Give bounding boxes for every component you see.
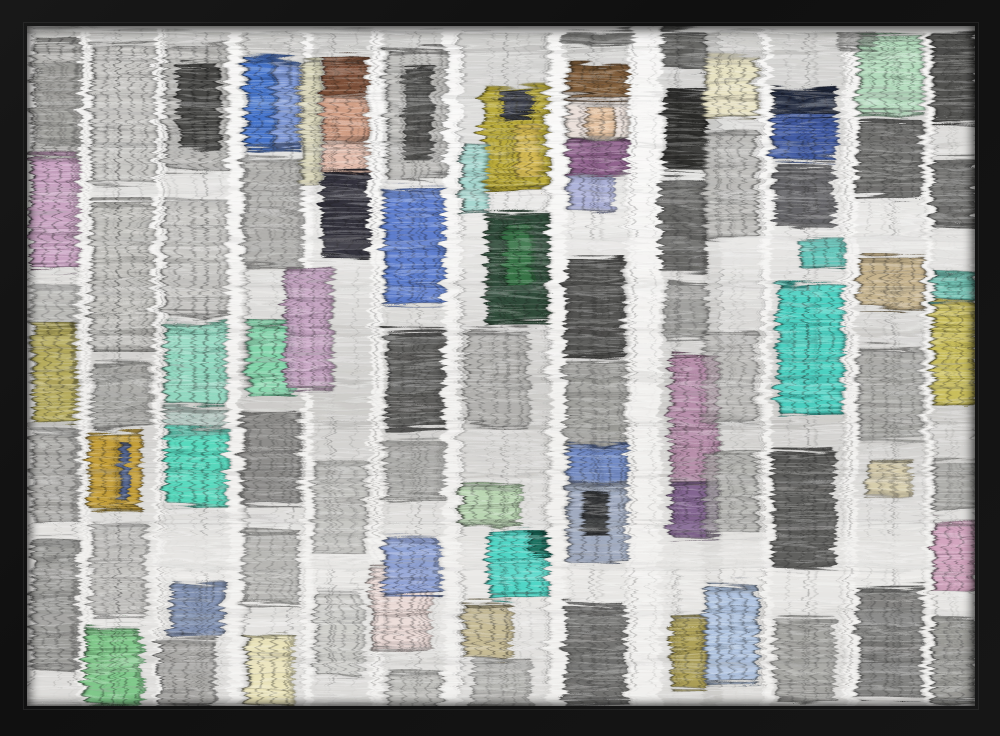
window-reflection	[161, 318, 223, 400]
window-reflection	[29, 426, 75, 521]
window-reflection	[657, 176, 701, 268]
window-reflection	[311, 586, 359, 671]
window-reflection	[380, 183, 440, 300]
window-reflection	[559, 26, 629, 40]
window-reflection	[854, 116, 918, 194]
window-reflection	[29, 536, 75, 666]
window-reflection	[659, 26, 701, 66]
reflection-scene	[27, 26, 975, 706]
picture-frame	[0, 0, 1000, 736]
window-reflection	[87, 196, 149, 346]
window-reflection	[929, 154, 974, 226]
window-reflection	[929, 270, 974, 298]
window-reflection	[463, 326, 525, 422]
window-reflection	[295, 54, 317, 182]
window-reflection	[562, 600, 622, 700]
window-reflection	[562, 252, 620, 352]
window-reflection	[280, 262, 328, 384]
window-reflection	[239, 154, 297, 262]
window-reflection	[457, 478, 517, 521]
window-reflection	[81, 622, 139, 702]
window-reflection	[115, 438, 125, 496]
window-reflection	[239, 526, 293, 601]
window-reflection	[380, 530, 437, 592]
window-reflection	[929, 298, 974, 400]
window-reflection	[929, 518, 974, 588]
window-reflection	[33, 56, 73, 141]
window-reflection	[318, 136, 364, 168]
window-reflection	[239, 406, 295, 501]
window-reflection	[699, 50, 754, 113]
window-reflection	[863, 454, 907, 492]
window-reflection	[167, 578, 220, 631]
window-reflection	[700, 581, 754, 678]
window-reflection	[564, 60, 624, 95]
framed-art-print	[0, 0, 1000, 736]
window-reflection	[499, 222, 529, 282]
window-reflection	[155, 634, 211, 704]
window-reflection	[699, 446, 754, 531]
window-reflection	[769, 83, 833, 110]
window-reflection	[309, 456, 363, 551]
window-reflection	[564, 135, 624, 172]
window-reflection	[579, 486, 603, 530]
window-reflection	[794, 233, 839, 263]
window-reflection	[854, 344, 918, 436]
window-reflection	[667, 611, 700, 685]
window-reflection	[382, 434, 440, 496]
window-reflection	[87, 40, 151, 180]
window-reflection	[174, 60, 216, 144]
window-reflection	[318, 54, 364, 92]
window-reflection	[497, 86, 529, 114]
window-reflection	[929, 456, 974, 506]
window-reflection	[460, 598, 507, 655]
window-reflection	[161, 404, 223, 426]
window-reflection	[564, 170, 610, 206]
window-reflection	[27, 151, 75, 266]
window-reflection	[771, 614, 831, 696]
window-reflection	[384, 666, 438, 705]
window-reflection	[270, 57, 294, 143]
window-reflection	[774, 279, 839, 409]
window-reflection	[469, 656, 527, 705]
window-reflection	[527, 526, 545, 552]
window-reflection	[457, 139, 483, 209]
artwork-photo	[27, 26, 975, 706]
window-reflection	[511, 122, 537, 174]
window-reflection	[564, 439, 624, 478]
ripple-layer	[27, 26, 975, 706]
window-reflection	[29, 281, 75, 321]
window-reflection	[661, 278, 703, 336]
window-reflection	[161, 424, 223, 502]
window-reflection	[854, 252, 920, 305]
window-reflection	[929, 26, 974, 121]
window-reflection	[161, 194, 223, 312]
window-reflection	[699, 326, 753, 418]
window-reflection	[771, 161, 831, 221]
window-reflection	[87, 518, 143, 613]
window-reflection	[582, 100, 610, 132]
window-reflection	[382, 326, 440, 426]
window-reflection	[318, 166, 366, 254]
window-reflection	[29, 319, 73, 419]
window-reflection	[929, 614, 974, 699]
window-reflection	[769, 110, 833, 157]
window-reflection	[769, 446, 831, 564]
window-reflection	[84, 428, 137, 504]
window-reflection	[854, 582, 918, 694]
window-reflection	[89, 358, 147, 424]
window-reflection	[562, 356, 622, 446]
window-reflection	[833, 26, 873, 46]
window-reflection	[699, 126, 754, 234]
window-reflection	[242, 628, 289, 705]
window-reflection	[661, 83, 703, 165]
window-reflection	[399, 64, 429, 156]
window-reflection	[318, 90, 364, 138]
